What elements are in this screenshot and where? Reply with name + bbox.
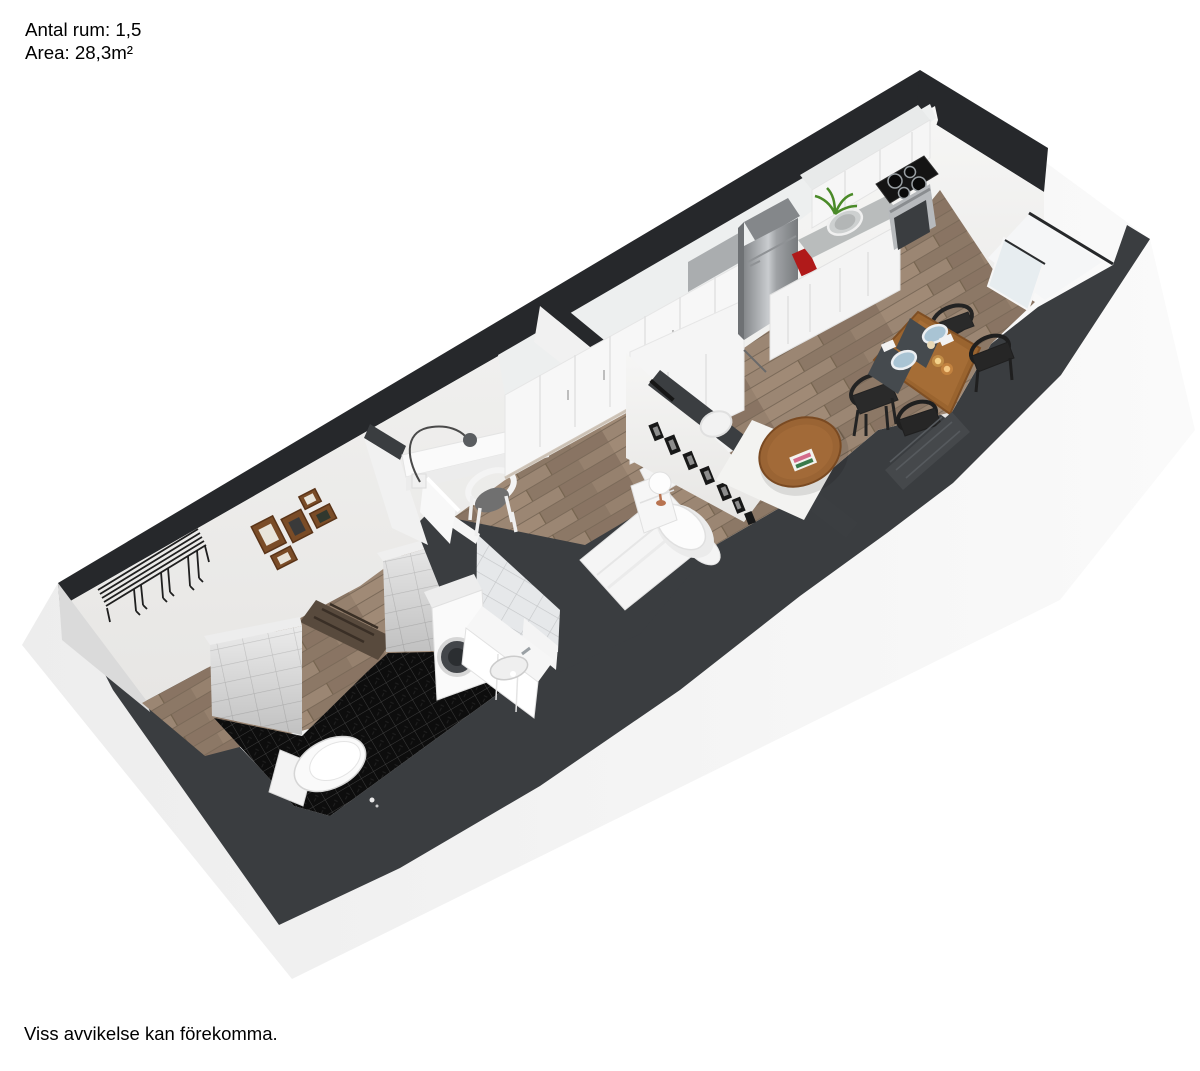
svg-text:Viss avvikelse kan förekomma.: Viss avvikelse kan förekomma. bbox=[24, 1023, 278, 1044]
svg-text:Area: 28,3m²: Area: 28,3m² bbox=[25, 42, 133, 63]
svg-text:Antal rum: 1,5: Antal rum: 1,5 bbox=[25, 19, 141, 40]
